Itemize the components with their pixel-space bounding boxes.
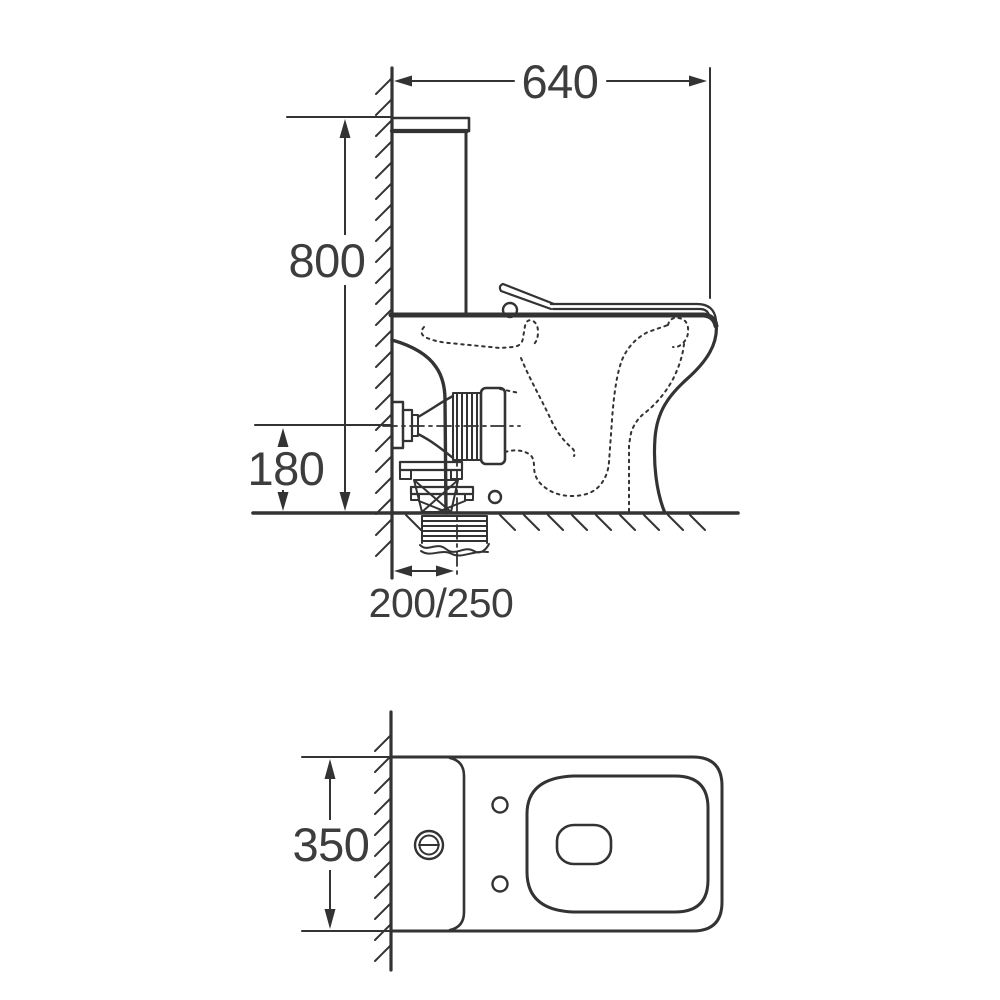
floor-pipe-corrugation xyxy=(422,516,487,543)
dim-350-arrow-bottom xyxy=(325,909,336,929)
dim-350-arrow-top xyxy=(325,759,336,779)
dim-200-250-label: 200/250 xyxy=(369,580,514,626)
seat-line-upper xyxy=(551,304,716,320)
toilet-dimension-diagram: 640 800 180 200/250 350 xyxy=(0,0,1000,1000)
plan-seat-outline xyxy=(527,776,708,912)
floor-hatching xyxy=(406,515,705,530)
fixing-hole-circle xyxy=(489,491,501,503)
floor-pipe-break-wave xyxy=(420,544,489,556)
dim-800-arrow-top xyxy=(340,119,351,138)
dim-800-label: 800 xyxy=(289,234,366,287)
dim-350-label: 350 xyxy=(293,818,370,871)
inlet-channel-dashed xyxy=(521,358,575,456)
rim-channel-dashed xyxy=(422,320,538,348)
side-elevation-view xyxy=(245,68,738,578)
wall-section xyxy=(376,68,392,578)
hinge-hole-bottom xyxy=(493,877,508,892)
lid-raised-rear xyxy=(500,284,554,309)
plan-bowl-opening xyxy=(557,825,611,864)
drawing-canvas: 640 800 180 200/250 350 xyxy=(0,0,1000,1000)
cistern xyxy=(392,118,469,313)
bowl-outline xyxy=(391,315,716,513)
rim-rear-hook-dashed xyxy=(668,318,688,347)
dim-200-250-arrow-right xyxy=(436,566,454,577)
dim-640-arrow-left xyxy=(394,76,412,87)
wall-flange-plate xyxy=(392,402,403,448)
floor-section xyxy=(253,513,738,530)
horizontal-outlet xyxy=(383,388,520,464)
plan-toilet-outline xyxy=(391,757,722,931)
dim-200-250-arrow-left xyxy=(394,566,412,577)
dim-180-label: 180 xyxy=(248,442,325,495)
floor-outlet-plate xyxy=(400,462,462,470)
floor-outlet-tab-left xyxy=(400,470,411,479)
plan-wall-hatching xyxy=(375,735,391,961)
dim-800-arrow-bottom xyxy=(340,492,351,511)
bowl-front-profile xyxy=(654,322,716,513)
dim-640-arrow-right xyxy=(689,76,707,87)
plan-cistern-front-edge xyxy=(450,758,464,930)
outlet-cone xyxy=(418,396,453,458)
hinge-hole-top xyxy=(493,798,508,813)
floor-outlet-flange xyxy=(411,487,473,494)
dim-640-label: 640 xyxy=(522,55,599,108)
sump-dashed xyxy=(505,325,668,496)
dimension-200-250 xyxy=(394,566,454,577)
